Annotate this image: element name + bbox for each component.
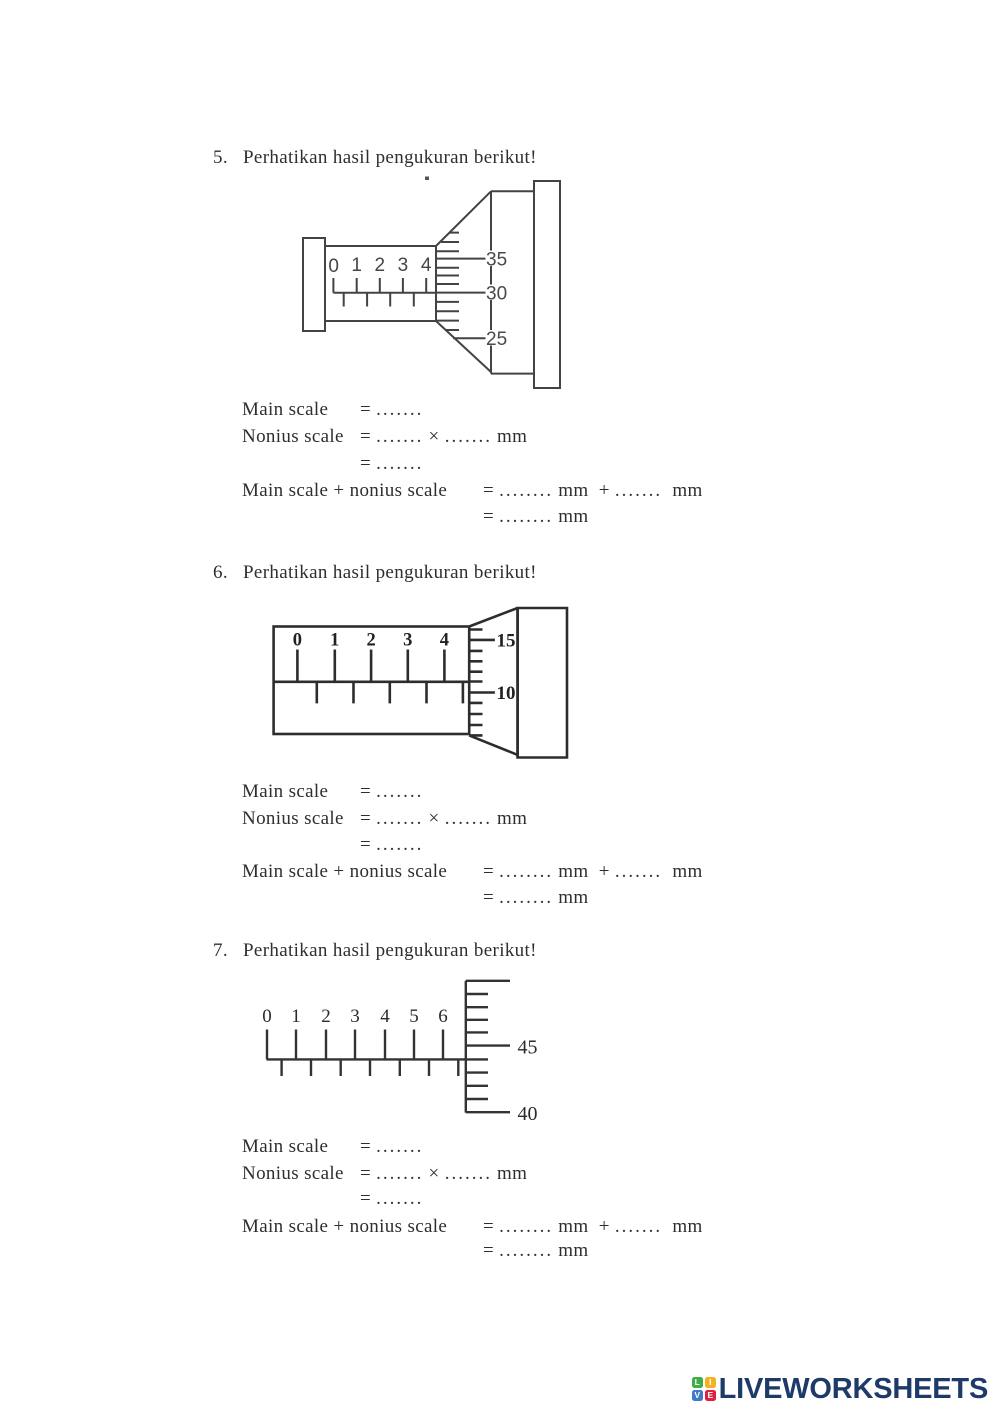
svg-text:40: 40: [518, 1103, 538, 1125]
svg-text:4: 4: [380, 1006, 390, 1027]
svg-text:15: 15: [497, 630, 516, 651]
svg-text:10: 10: [497, 683, 516, 704]
svg-text:2: 2: [366, 631, 375, 651]
svg-text:45: 45: [518, 1036, 538, 1058]
svg-text:0: 0: [328, 256, 339, 277]
svg-text:35: 35: [486, 250, 507, 271]
svg-text:25: 25: [486, 329, 507, 350]
svg-text:1: 1: [291, 1006, 301, 1027]
svg-text:2: 2: [321, 1006, 331, 1027]
svg-text:2: 2: [375, 255, 386, 276]
svg-text:3: 3: [350, 1006, 360, 1027]
svg-text:30: 30: [486, 284, 507, 305]
svg-text:1: 1: [351, 255, 362, 276]
svg-text:3: 3: [403, 631, 412, 651]
svg-text:5: 5: [409, 1006, 419, 1027]
svg-text:6: 6: [438, 1006, 448, 1027]
svg-text:3: 3: [398, 255, 409, 276]
svg-text:4: 4: [440, 631, 449, 651]
svg-text:4: 4: [421, 255, 432, 276]
svg-text:1: 1: [330, 631, 339, 651]
svg-text:0: 0: [293, 631, 302, 651]
svg-text:0: 0: [262, 1006, 272, 1027]
